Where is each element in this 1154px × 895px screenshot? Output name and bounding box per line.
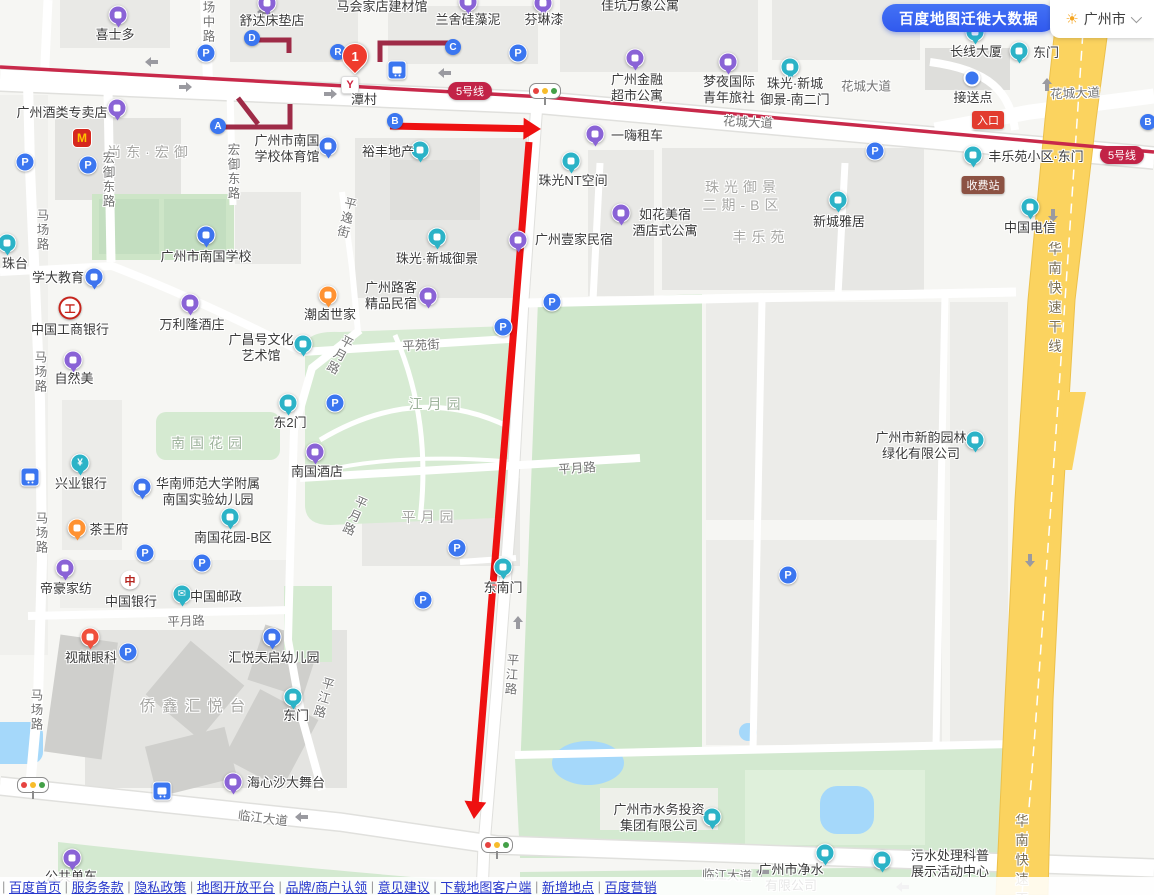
parking-icon[interactable]: P	[779, 566, 798, 585]
poi-label[interactable]: 一嗨租车	[611, 128, 663, 144]
poi-pin-icon[interactable]	[263, 628, 282, 647]
poi-label[interactable]: 污水处理科普 展示活动中心	[911, 848, 989, 881]
area-label: 侨鑫汇悦台	[140, 697, 253, 717]
footer-separator: |	[61, 879, 72, 894]
poi-label[interactable]: 中国工商银行	[31, 322, 109, 338]
poi-pin-icon[interactable]	[319, 286, 338, 305]
poi-label[interactable]: 如花美宿 酒店式公寓	[632, 207, 697, 240]
parking-icon[interactable]: P	[326, 394, 345, 413]
poi-label[interactable]: 自然美	[54, 371, 93, 387]
poi-label[interactable]: 广昌号文化 艺术馆	[228, 332, 293, 365]
poi-pin-icon[interactable]	[964, 146, 983, 165]
poi-pin-icon[interactable]	[1010, 42, 1029, 61]
road-label: 平月路	[558, 456, 597, 478]
parking-icon[interactable]: P	[119, 643, 138, 662]
footer-link[interactable]: 百度首页	[9, 877, 61, 895]
poi-pin-icon[interactable]	[181, 294, 200, 313]
migration-data-button[interactable]: 百度地图迁徙大数据	[882, 4, 1056, 32]
badge-toll: 收费站	[962, 176, 1005, 194]
poi-label[interactable]: 喜士多	[95, 27, 134, 43]
poi-pin-icon[interactable]	[829, 191, 848, 210]
badge-line: 5号线	[1100, 146, 1144, 164]
city-selector[interactable]: ☀ 广州市	[1050, 0, 1154, 38]
road-label: 马场路	[31, 350, 50, 394]
letter-marker-B[interactable]: B	[1140, 114, 1154, 130]
point-marker-icon[interactable]	[964, 70, 981, 87]
poi-pin-icon[interactable]	[562, 152, 581, 171]
footer-link[interactable]: 下载地图客户端	[440, 877, 531, 895]
footer-separator: |	[275, 879, 286, 894]
road-label: 马场路	[27, 688, 46, 732]
poi-label[interactable]: 佳坑万象公寓	[601, 0, 679, 14]
poi-label[interactable]: 广州酒类专卖店	[16, 105, 107, 121]
poi-label[interactable]: 茶王府	[89, 522, 128, 538]
footer-separator: |	[2, 879, 9, 894]
poi-pin-icon[interactable]	[781, 58, 800, 77]
chevron-down-icon	[1130, 12, 1141, 23]
parking-icon[interactable]: P	[509, 44, 528, 63]
area-label: 江月园	[409, 395, 466, 413]
road-label: 宏御东路	[224, 143, 243, 201]
footer-separator: |	[430, 879, 441, 894]
poi-label[interactable]: 潭村	[351, 92, 377, 108]
poi-label[interactable]: 长线大厦	[950, 44, 1002, 60]
road-label: 场中路	[199, 0, 218, 44]
poi-pin-icon[interactable]	[586, 125, 605, 144]
area-label: 平月园	[402, 508, 459, 526]
parking-icon[interactable]: P	[193, 554, 212, 573]
poi-pin-icon[interactable]	[64, 351, 83, 370]
poi-pin-icon[interactable]	[816, 844, 835, 863]
weather-sun-icon: ☀	[1065, 10, 1078, 28]
area-label: 珠光御景 二期-B区	[703, 178, 784, 214]
poi-label[interactable]: 珠光·新城御景	[396, 251, 478, 267]
poi-pin-icon[interactable]	[428, 228, 447, 247]
footer-separator: |	[367, 879, 378, 894]
poi-pin-icon[interactable]	[419, 287, 438, 306]
footer-link[interactable]: 地图开放平台	[197, 877, 275, 895]
map-overlay: 尚东·宏御珠光御景 二期-B区丰乐苑南国花园江月园平月园侨鑫汇悦台场中路宏御东路…	[0, 0, 1154, 895]
footer-link[interactable]: 隐私政策	[134, 877, 186, 895]
road-label: 华南快速干线	[1043, 242, 1063, 359]
poi-label[interactable]: 马会家店建材馆	[336, 0, 427, 15]
badge-line: 5号线	[448, 82, 492, 100]
letter-marker-A[interactable]: A	[210, 118, 226, 134]
poi-pin-icon[interactable]	[719, 53, 738, 72]
road-label: 花城大道	[723, 110, 774, 132]
poi-label[interactable]: 东2门	[273, 415, 306, 431]
poi-pin-icon[interactable]	[133, 478, 152, 497]
poi-label[interactable]: 汇悦天启幼儿园	[228, 650, 319, 666]
road-label: 马场路	[33, 208, 52, 252]
poi-pin-icon[interactable]	[612, 204, 631, 223]
poi-pin-icon[interactable]	[197, 226, 216, 245]
poi-label[interactable]: 广州路客 精品民宿	[365, 280, 417, 313]
parking-icon[interactable]: P	[494, 318, 513, 337]
bus-stop-icon[interactable]	[21, 468, 40, 487]
poi-label[interactable]: 广州市南国 学校体育馆	[254, 133, 319, 166]
boc-bank-icon[interactable]: 中	[121, 571, 140, 590]
parking-icon[interactable]: P	[79, 156, 98, 175]
road-label: 花城大道	[1050, 82, 1101, 103]
poi-pin-icon[interactable]	[85, 268, 104, 287]
footer-link[interactable]: 新增地点	[542, 877, 594, 895]
area-label: 丰乐苑	[733, 228, 790, 246]
poi-pin-icon[interactable]	[294, 335, 313, 354]
baidu-map-app: 尚东·宏御珠光御景 二期-B区丰乐苑南国花园江月园平月园侨鑫汇悦台场中路宏御东路…	[0, 0, 1154, 895]
parking-icon[interactable]: P	[414, 591, 433, 610]
poi-label[interactable]: 梦夜国际 青年旅社	[703, 74, 755, 107]
poi-label[interactable]: 万利隆酒庄	[159, 317, 224, 333]
letter-marker-B[interactable]: B	[387, 113, 403, 129]
traffic-light-icon	[17, 777, 49, 793]
poi-label[interactable]: 东门	[1033, 45, 1059, 61]
poi-label[interactable]: 新城雅居	[813, 214, 865, 230]
icbc-bank-icon[interactable]: 工	[59, 297, 82, 320]
poi-label[interactable]: 接送点	[953, 90, 992, 106]
poi-pin-icon[interactable]: ¥	[71, 454, 90, 473]
traffic-light-icon	[481, 837, 513, 853]
footer-link-bar: | 百度首页 | 服务条款 | 隐私政策 | 地图开放平台 | 品牌/商户认领 …	[0, 877, 1154, 895]
poi-label[interactable]: 华南师范大学附属 南国实验幼儿园	[156, 476, 260, 509]
parking-icon[interactable]: P	[866, 142, 885, 161]
footer-separator: |	[186, 879, 197, 894]
poi-pin-icon[interactable]	[966, 431, 985, 450]
poi-pin-icon[interactable]	[221, 508, 240, 527]
parking-icon[interactable]: P	[16, 153, 35, 172]
poi-pin-icon[interactable]	[459, 0, 478, 12]
footer-separator: |	[531, 879, 542, 894]
area-label: 尚东·宏御	[107, 143, 193, 161]
badge-entrance: 入口	[972, 111, 1004, 129]
road-label: 平江路	[500, 653, 522, 698]
poi-pin-icon[interactable]	[56, 559, 75, 578]
poi-label[interactable]: 中国邮政	[190, 589, 242, 605]
poi-pin-icon[interactable]	[284, 688, 303, 707]
road-label: 平苑街	[402, 334, 440, 355]
road-label: 平江路	[308, 674, 338, 721]
mcdonalds-icon[interactable]: M	[72, 128, 92, 148]
poi-pin-icon[interactable]	[319, 137, 338, 156]
letter-marker-D[interactable]: D	[244, 30, 260, 46]
traffic-light-icon	[529, 83, 561, 99]
road-label: 花城大道	[841, 76, 891, 95]
poi-label[interactable]: 舒达床垫店	[239, 13, 304, 29]
poi-pin-icon[interactable]	[109, 6, 128, 25]
letter-marker-C[interactable]: C	[445, 39, 461, 55]
poi-label[interactable]: 广州市水务投资 集团有限公司	[613, 802, 704, 835]
poi-label[interactable]: 兰舍硅藻泥	[435, 12, 500, 28]
poi-label[interactable]: 海心沙大舞台	[247, 775, 325, 791]
poi-label[interactable]: 芬琳漆	[524, 12, 563, 28]
poi-label[interactable]: 兴业银行	[55, 476, 107, 492]
parking-icon[interactable]: P	[448, 539, 467, 558]
city-name: 广州市	[1084, 9, 1126, 29]
road-label: 平月路	[167, 610, 205, 630]
poi-pin-icon[interactable]	[81, 628, 100, 647]
poi-pin-icon[interactable]	[626, 49, 645, 68]
poi-pin-icon[interactable]	[279, 394, 298, 413]
poi-pin-icon[interactable]	[494, 558, 513, 577]
road-label: 宏御东路	[99, 151, 118, 209]
poi-label[interactable]: 广州壹家民宿	[535, 232, 613, 248]
poi-label[interactable]: 潮卤世家	[304, 307, 356, 323]
poi-label[interactable]: 东门	[283, 708, 309, 724]
footer-separator: |	[124, 879, 135, 894]
poi-label[interactable]: 东南门	[483, 580, 522, 596]
poi-label[interactable]: 中国电信	[1004, 220, 1056, 236]
poi-label[interactable]: 裕丰地产	[362, 144, 414, 160]
parking-icon[interactable]: P	[197, 44, 216, 63]
poi-label[interactable]: 广州金融 超市公寓	[611, 72, 663, 105]
poi-label[interactable]: 帝豪家纺	[40, 581, 92, 597]
poi-pin-icon[interactable]	[703, 808, 722, 827]
footer-link[interactable]: 意见建议	[378, 877, 430, 895]
poi-pin-icon[interactable]	[63, 849, 82, 868]
road-label: 平逸街	[332, 195, 361, 242]
poi-pin-icon[interactable]	[306, 443, 325, 462]
poi-label[interactable]: 广州市新韵园林 绿化有限公司	[875, 430, 966, 463]
poi-label[interactable]: 南国酒店	[291, 464, 343, 480]
poi-label[interactable]: 视献眼科	[65, 650, 117, 666]
footer-link[interactable]: 百度营销	[605, 877, 657, 895]
poi-label[interactable]: 珠光NT空间	[538, 173, 607, 189]
poi-pin-icon[interactable]	[1021, 198, 1040, 217]
parking-icon[interactable]: P	[136, 544, 155, 563]
road-label: 平月路	[336, 492, 371, 539]
bus-stop-icon[interactable]	[153, 782, 172, 801]
footer-link[interactable]: 品牌/商户认领	[286, 877, 368, 895]
road-label: 马场路	[32, 511, 51, 555]
poi-pin-icon[interactable]	[509, 231, 528, 250]
footer-separator: |	[594, 879, 605, 894]
poi-label[interactable]: 南国花园-B区	[194, 530, 272, 546]
poi-pin-icon[interactable]: ✉	[173, 585, 192, 604]
route-number-pin[interactable]: 1	[337, 38, 374, 75]
poi-pin-icon[interactable]	[534, 0, 553, 13]
poi-pin-icon[interactable]	[873, 851, 892, 870]
poi-pin-icon[interactable]	[0, 234, 17, 253]
road-label: 平月路	[320, 331, 357, 378]
poi-label[interactable]: 中国银行	[105, 594, 157, 610]
poi-label[interactable]: 珠光·新城 御景-南二门	[760, 76, 829, 109]
poi-label[interactable]: 广州市南国学校	[160, 249, 251, 265]
bus-stop-icon[interactable]	[388, 61, 407, 80]
poi-label[interactable]: 珠台	[2, 256, 28, 272]
poi-label[interactable]: 学大教育	[32, 270, 84, 286]
poi-pin-icon[interactable]	[68, 519, 87, 538]
road-label: 临江大道	[237, 805, 289, 830]
footer-link[interactable]: 服务条款	[72, 877, 124, 895]
poi-label[interactable]: 丰乐苑小区·东门	[988, 149, 1083, 165]
parking-icon[interactable]: P	[543, 293, 562, 312]
area-label: 南国花园	[171, 434, 247, 452]
poi-pin-icon[interactable]	[108, 99, 127, 118]
poi-pin-icon[interactable]	[258, 0, 277, 13]
poi-pin-icon[interactable]	[224, 773, 243, 792]
